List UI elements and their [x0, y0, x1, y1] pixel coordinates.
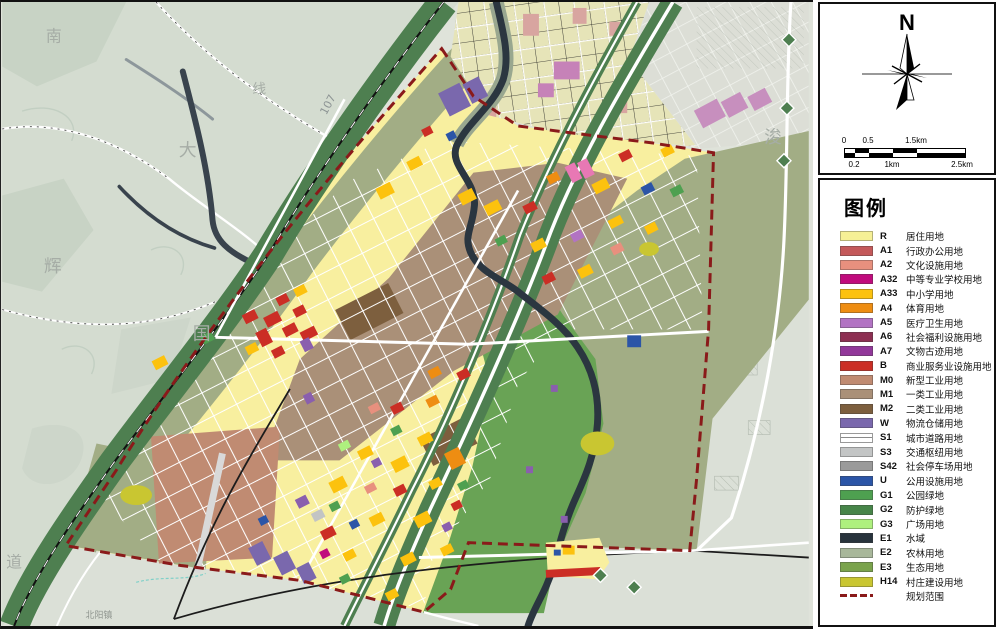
legend-swatch — [840, 346, 873, 356]
legend-code: S42 — [880, 461, 906, 472]
legend-label: 居住用地 — [906, 229, 944, 243]
legend-swatch — [840, 447, 873, 457]
legend-swatch — [840, 260, 873, 270]
legend-row: E2 农林用地 — [840, 546, 994, 560]
legend-swatch — [840, 476, 873, 486]
map-svg: 南 大 辉 国 道 浚 线 107 北阳镇 — [1, 2, 810, 626]
scale-tick: 2.5km — [951, 160, 973, 169]
legend-label: 文物古迹用地 — [906, 344, 963, 358]
legend-code: A4 — [880, 303, 906, 314]
scale-tick: 0.2 — [848, 160, 859, 169]
legend-swatch — [840, 461, 873, 471]
map-canvas: 南 大 辉 国 道 浚 线 107 北阳镇 — [0, 0, 813, 629]
legend-label: 交通枢纽用地 — [906, 445, 963, 459]
legend-swatch — [840, 318, 873, 328]
side-panel: N 0 0.5 1.5km — [813, 0, 1000, 629]
legend-code: A32 — [880, 274, 906, 285]
legend-row: A5 医疗卫生用地 — [840, 315, 994, 329]
label-town: 北阳镇 — [86, 609, 113, 621]
legend-row: H14 村庄建设用地 — [840, 574, 994, 588]
legend-swatch — [840, 375, 873, 385]
legend-label: 文化设施用地 — [906, 258, 963, 272]
legend-row: A4 体育用地 — [840, 301, 994, 315]
legend-label: 社会停车场用地 — [906, 459, 973, 473]
legend-row: E1 水域 — [840, 531, 994, 545]
scale-tick: 0 — [842, 136, 846, 145]
legend-label: 中小学用地 — [906, 287, 954, 301]
legend-swatch — [840, 303, 873, 313]
legend-swatch — [840, 418, 873, 428]
label-region-4: 国 — [193, 323, 211, 344]
legend-code: A1 — [880, 245, 906, 256]
legend-label: 公园绿地 — [906, 488, 944, 502]
legend-label: 医疗卫生用地 — [906, 316, 963, 330]
legend-label: 公用设施用地 — [906, 474, 963, 488]
legend-label: 商业服务业设施用地 — [906, 359, 992, 373]
legend-swatch — [840, 591, 873, 601]
legend-swatch — [840, 361, 873, 371]
legend-row: 规划范围 — [840, 589, 994, 603]
legend-label: 物流仓储用地 — [906, 416, 963, 430]
legend-row: G2 防护绿地 — [840, 502, 994, 516]
label-region-3: 辉 — [44, 256, 62, 277]
legend-row: S42 社会停车场用地 — [840, 459, 994, 473]
legend-swatch — [840, 490, 873, 500]
legend-row: R 居住用地 — [840, 229, 994, 243]
legend-code: E3 — [880, 562, 906, 573]
compass-rose-icon — [852, 30, 962, 116]
legend-label: 规划范围 — [906, 589, 944, 603]
legend-row: M0 新型工业用地 — [840, 373, 994, 387]
legend-row: A6 社会福利设施用地 — [840, 330, 994, 344]
legend-row: A7 文物古迹用地 — [840, 344, 994, 358]
legend-code: R — [880, 231, 906, 242]
legend-code: A33 — [880, 288, 906, 299]
legend-code: A7 — [880, 346, 906, 357]
legend-swatch — [840, 389, 873, 399]
legend-swatch — [840, 246, 873, 256]
label-railway: 线 — [252, 81, 266, 97]
scale-tick: 0.5 — [862, 136, 873, 145]
legend-swatch — [840, 548, 873, 558]
legend-swatch — [840, 289, 873, 299]
legend-label: 防护绿地 — [906, 503, 944, 517]
legend-label: 生态用地 — [906, 560, 944, 574]
legend-label: 中等专业学校用地 — [906, 272, 982, 286]
legend-label: 广场用地 — [906, 517, 944, 531]
legend-row: B 商业服务业设施用地 — [840, 359, 994, 373]
legend-row: G3 广场用地 — [840, 517, 994, 531]
legend-swatch — [840, 332, 873, 342]
scale-tick: 1.5km — [905, 136, 927, 145]
legend-swatch — [840, 562, 873, 572]
legend-swatch — [840, 433, 873, 443]
legend-row: M2 二类工业用地 — [840, 402, 994, 416]
legend-code: G1 — [880, 490, 906, 501]
label-region-1: 南 — [46, 27, 62, 46]
legend-code: G2 — [880, 504, 906, 515]
label-region-5: 道 — [6, 552, 22, 571]
legend-code: H14 — [880, 576, 906, 587]
legend-label: 行政办公用地 — [906, 244, 963, 258]
legend-swatch — [840, 404, 873, 414]
legend-label: 社会福利设施用地 — [906, 330, 982, 344]
legend-row: A1 行政办公用地 — [840, 243, 994, 257]
legend-code: B — [880, 360, 906, 371]
legend-swatch — [840, 577, 873, 587]
scale-tick: 1km — [884, 160, 899, 169]
legend-label: 体育用地 — [906, 301, 944, 315]
planning-map-sheet: 南 大 辉 国 道 浚 线 107 北阳镇 N 0 — [0, 0, 1000, 629]
legend-swatch — [840, 519, 873, 529]
legend-code: A6 — [880, 331, 906, 342]
scale-bar: 0 0.5 1.5km 0.2 1km 2.5km — [844, 136, 970, 170]
legend-row: G1 公园绿地 — [840, 488, 994, 502]
legend-label: 一类工业用地 — [906, 387, 963, 401]
legend-label: 新型工业用地 — [906, 373, 963, 387]
label-region-6: 浚 — [764, 127, 782, 148]
legend-row: A33 中小学用地 — [840, 287, 994, 301]
legend-code: S3 — [880, 447, 906, 458]
legend-code: M1 — [880, 389, 906, 400]
legend-swatch — [840, 231, 873, 241]
legend-box: 图例 R 居住用地 A1 行政办公用地 A2 文化设施用地 A32 中等专业学校… — [818, 178, 996, 627]
legend-code: M2 — [880, 403, 906, 414]
legend-row: A32 中等专业学校用地 — [840, 272, 994, 286]
legend-label: 二类工业用地 — [906, 402, 963, 416]
legend-row: W 物流仓储用地 — [840, 416, 994, 430]
legend-row: S3 交通枢纽用地 — [840, 445, 994, 459]
legend-code: E1 — [880, 533, 906, 544]
legend-swatch — [840, 533, 873, 543]
legend-row: A2 文化设施用地 — [840, 258, 994, 272]
label-region-2: 大 — [179, 140, 197, 161]
legend-code: S1 — [880, 432, 906, 443]
legend-list: R 居住用地 A1 行政办公用地 A2 文化设施用地 A32 中等专业学校用地 — [840, 229, 994, 603]
legend-row: S1 城市道路用地 — [840, 430, 994, 444]
legend-label: 村庄建设用地 — [906, 575, 963, 589]
legend-code: E2 — [880, 547, 906, 558]
legend-row: U 公用设施用地 — [840, 474, 994, 488]
legend-swatch — [840, 505, 873, 515]
legend-row: M1 一类工业用地 — [840, 387, 994, 401]
legend-code: M0 — [880, 375, 906, 386]
legend-swatch — [840, 274, 873, 284]
legend-label: 城市道路用地 — [906, 431, 963, 445]
legend-code: A2 — [880, 259, 906, 270]
legend-title: 图例 — [844, 192, 994, 221]
legend-label: 农林用地 — [906, 546, 944, 560]
legend-label: 水域 — [906, 531, 925, 545]
compass-scale-box: N 0 0.5 1.5km — [818, 2, 996, 175]
legend-code: W — [880, 418, 906, 429]
scale-bar-segments — [844, 148, 966, 158]
legend-code: A5 — [880, 317, 906, 328]
legend-code: U — [880, 475, 906, 486]
legend-code: G3 — [880, 519, 906, 530]
legend-row: E3 生态用地 — [840, 560, 994, 574]
